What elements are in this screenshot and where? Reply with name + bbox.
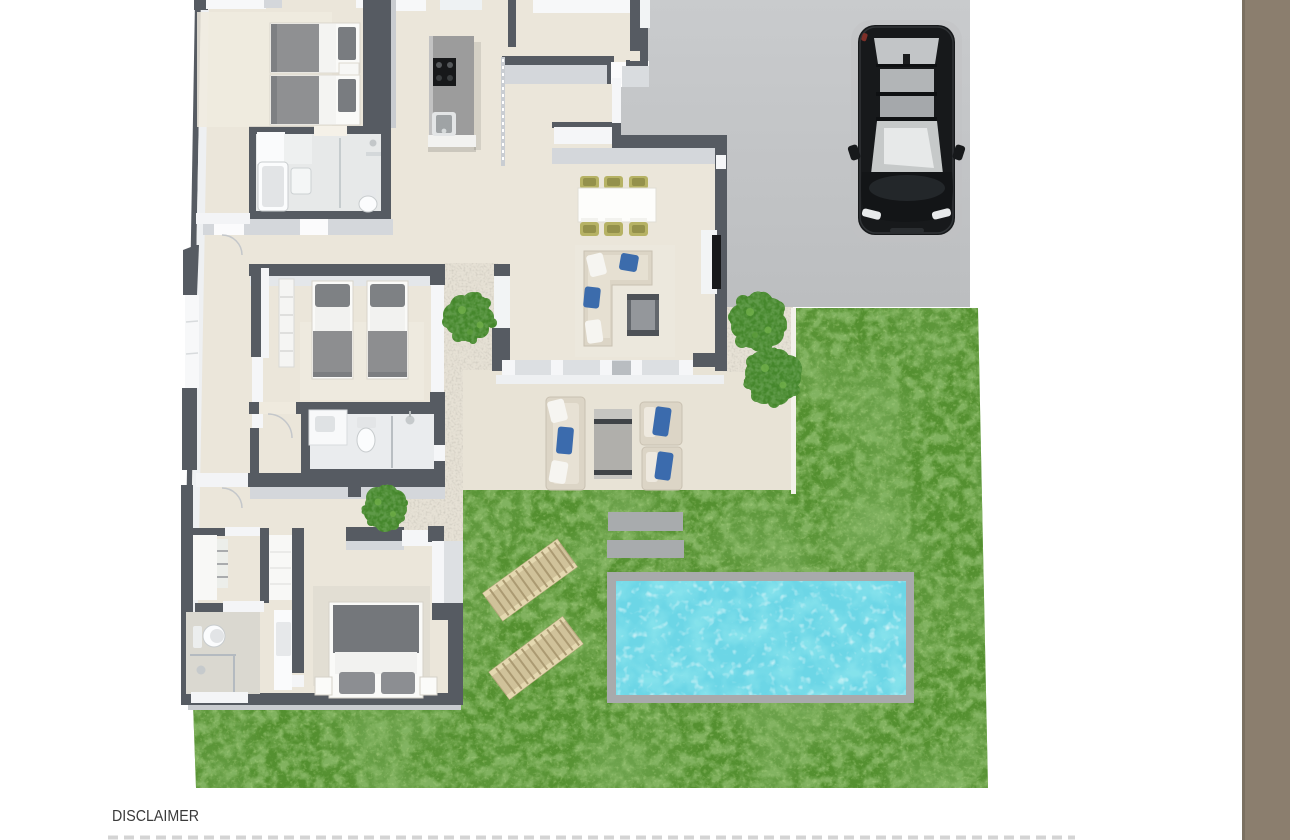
svg-text:DISCLAIMER: DISCLAIMER bbox=[112, 808, 199, 825]
